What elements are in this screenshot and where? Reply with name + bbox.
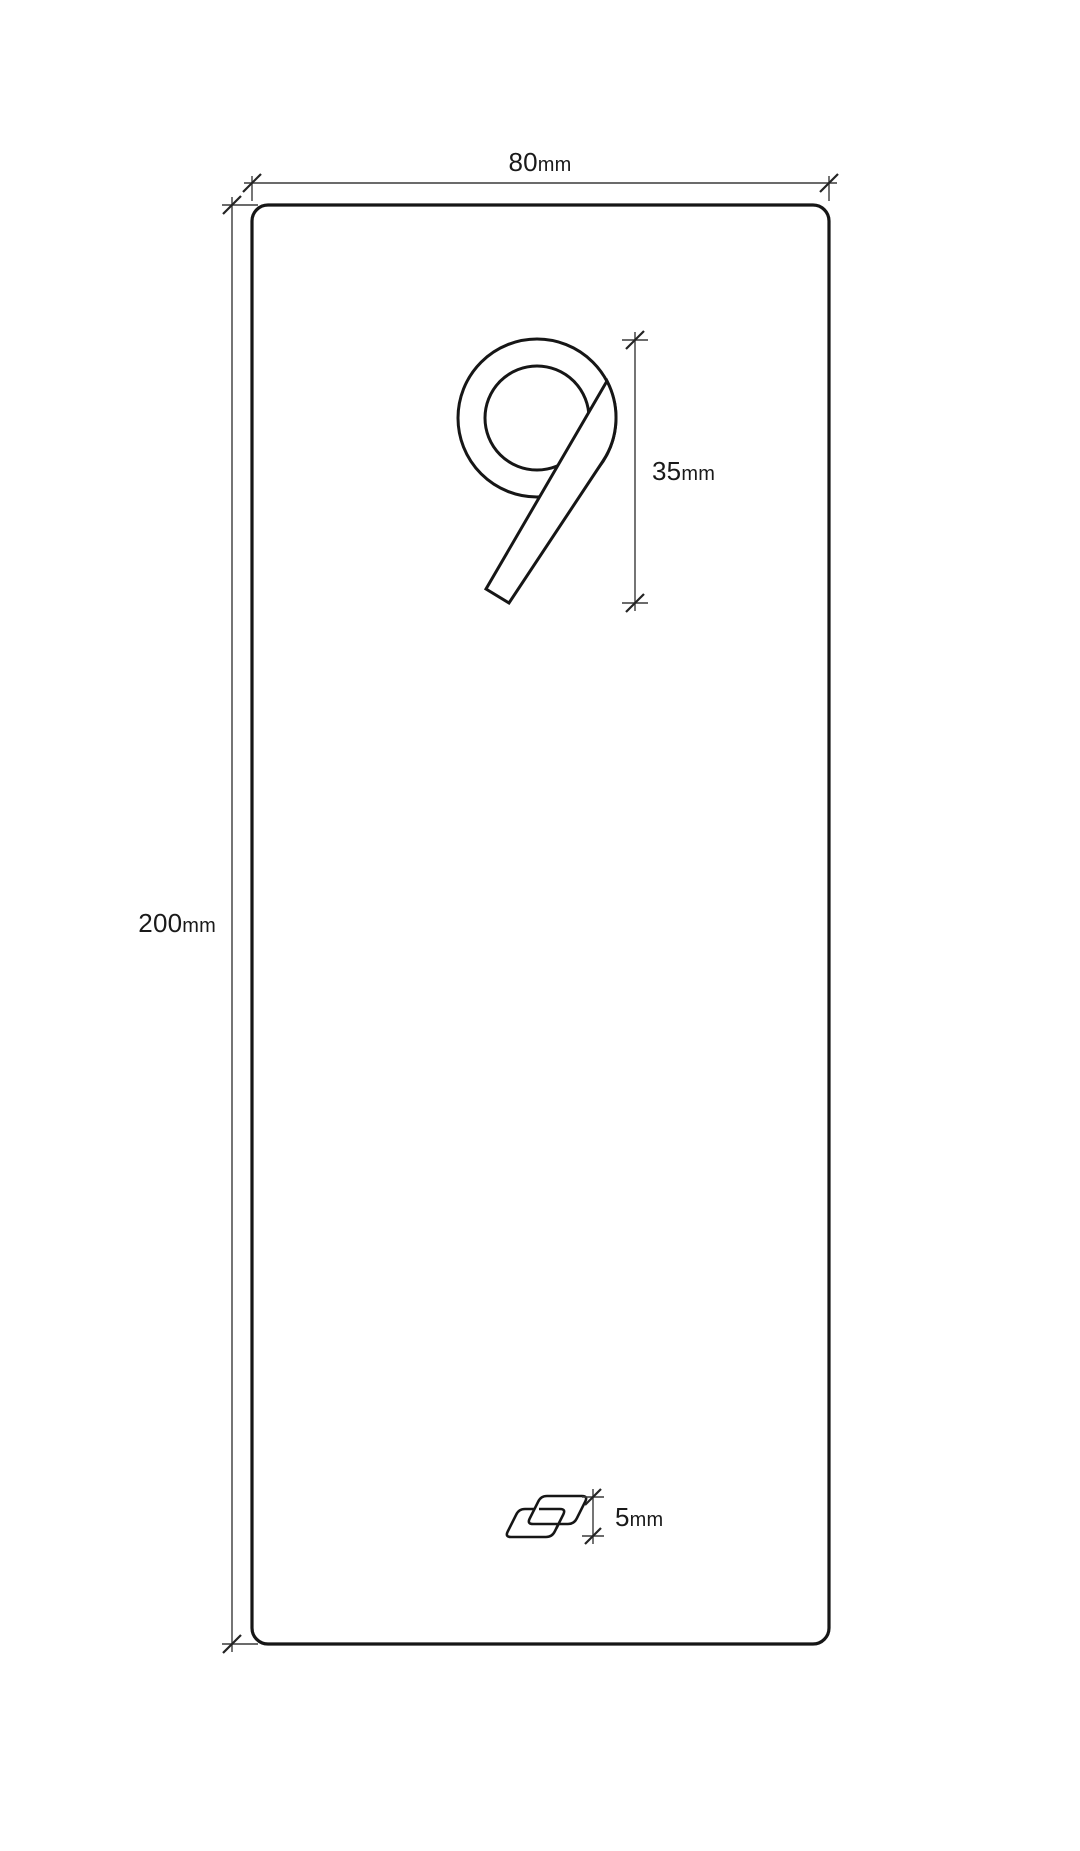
width-dimension-value: 80 <box>508 147 537 177</box>
plate-outline <box>252 205 829 1644</box>
logo-height-dimension-label: 5mm <box>615 1503 663 1532</box>
height-dimension-label: 200mm <box>60 909 216 938</box>
logo-height-dimension-value: 5 <box>615 1502 630 1532</box>
width-dimension <box>243 174 838 201</box>
digit-height-dimension-label: 35mm <box>652 457 715 486</box>
height-dimension-unit: mm <box>182 915 216 937</box>
logo-height-dimension-unit: mm <box>630 1509 664 1531</box>
height-dimension-value: 200 <box>138 908 182 938</box>
width-dimension-label: 80mm <box>440 148 640 177</box>
width-dimension-unit: mm <box>538 154 572 176</box>
digit-height-dimension-unit: mm <box>681 463 715 485</box>
digit-height-dimension-value: 35 <box>652 456 681 486</box>
technical-drawing-canvas: 80mm 200mm 35mm 5mm <box>0 0 1080 1851</box>
